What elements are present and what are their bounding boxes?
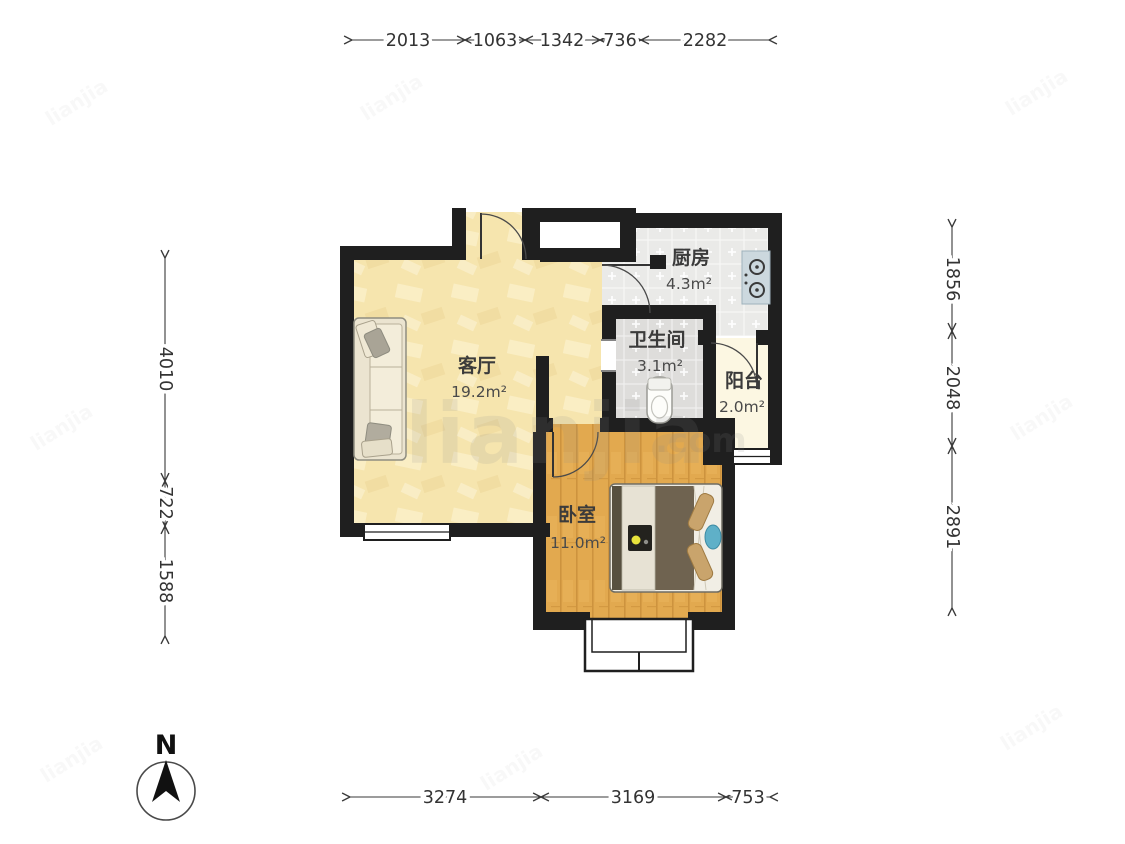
compass: N bbox=[137, 730, 195, 820]
dim-left-1: 4010 bbox=[155, 347, 175, 392]
dim-top-4: 736 bbox=[603, 31, 636, 51]
dim-right-3: 2891 bbox=[942, 505, 962, 550]
compass-needle-icon bbox=[152, 760, 180, 802]
compass-north-label: N bbox=[155, 730, 178, 761]
dim-top-2: 1063 bbox=[473, 31, 518, 51]
bedroom-label: 卧室 bbox=[558, 503, 596, 526]
corner-watermark: lianjia bbox=[26, 399, 97, 456]
corner-watermark: lianjia bbox=[996, 699, 1067, 756]
dim-bottom-2: 3169 bbox=[611, 788, 656, 808]
watermark: lianjia .com lianjia lianjia lianjia lia… bbox=[26, 64, 1077, 796]
corner-watermark: lianjia bbox=[36, 731, 107, 788]
round-cushion bbox=[705, 525, 721, 549]
corner-watermark: lianjia bbox=[476, 739, 547, 796]
dimension-left: 4010 722 1588 bbox=[155, 258, 175, 636]
bedroom-bay-window bbox=[585, 619, 693, 671]
dim-left-2: 722 bbox=[155, 486, 175, 519]
bathroom-label: 卫生间 bbox=[628, 328, 685, 351]
dim-top-3: 1342 bbox=[540, 31, 585, 51]
stove bbox=[742, 251, 770, 304]
dimension-top: 2013 1063 1342 736 2282 bbox=[352, 31, 769, 51]
corner-watermark: lianjia bbox=[1001, 64, 1072, 121]
dim-right-2: 2048 bbox=[942, 366, 962, 411]
dim-right-1: 1856 bbox=[942, 257, 962, 302]
kitchen-label: 厨房 bbox=[672, 246, 710, 269]
sofa bbox=[354, 318, 406, 460]
corner-watermark: lianjia bbox=[1006, 389, 1077, 446]
balcony-label: 阳台 bbox=[725, 369, 763, 392]
bed bbox=[610, 484, 722, 592]
bedroom-area: 11.0m² bbox=[550, 534, 606, 552]
floor-plan-page: lianjia .com lianjia lianjia lianjia lia… bbox=[0, 0, 1125, 844]
dim-top-1: 2013 bbox=[386, 31, 431, 51]
bathroom-door-frame bbox=[601, 339, 616, 372]
dim-bottom-1: 3274 bbox=[423, 788, 468, 808]
bathroom-area: 3.1m² bbox=[637, 357, 683, 375]
dim-left-3: 1588 bbox=[155, 559, 175, 604]
corner-watermark: lianjia bbox=[356, 69, 427, 126]
corner-watermark: lianjia bbox=[41, 74, 112, 131]
dimension-bottom: 3274 3169 753 bbox=[350, 788, 770, 808]
entry-alcove-floor bbox=[466, 212, 522, 252]
floor-plan-svg: lianjia .com lianjia lianjia lianjia lia… bbox=[0, 0, 1125, 844]
dim-top-5: 2282 bbox=[683, 31, 728, 51]
balcony-area: 2.0m² bbox=[719, 398, 765, 416]
watermark-suffix: .com bbox=[655, 421, 747, 461]
dimension-right: 1856 2048 2891 bbox=[942, 227, 962, 608]
kitchen-area: 4.3m² bbox=[666, 275, 712, 293]
outside-notch bbox=[536, 220, 626, 250]
living-room-window bbox=[364, 524, 450, 540]
living-room-area: 19.2m² bbox=[451, 383, 507, 401]
living-room-label: 客厅 bbox=[458, 354, 496, 377]
dim-bottom-3: 753 bbox=[731, 788, 764, 808]
